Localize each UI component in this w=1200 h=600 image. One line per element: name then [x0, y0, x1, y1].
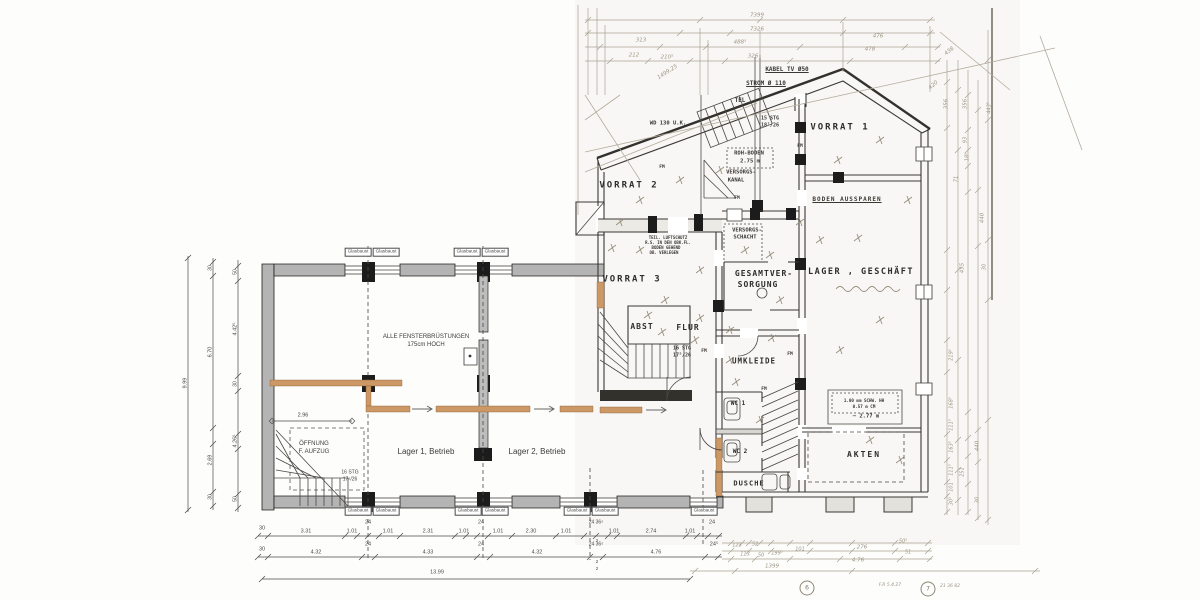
heavy-wall: [600, 390, 692, 401]
stairs-left-building: [274, 430, 348, 506]
floor-plan-sheet: VORRAT 1VORRAT 2VORRAT 3LAGER , GESCHÄFT…: [0, 0, 1200, 600]
elevator-opening: [290, 428, 364, 490]
beam: [270, 380, 402, 386]
plan-geometry: [0, 0, 1200, 600]
scan-paper-region: [575, 0, 1020, 545]
